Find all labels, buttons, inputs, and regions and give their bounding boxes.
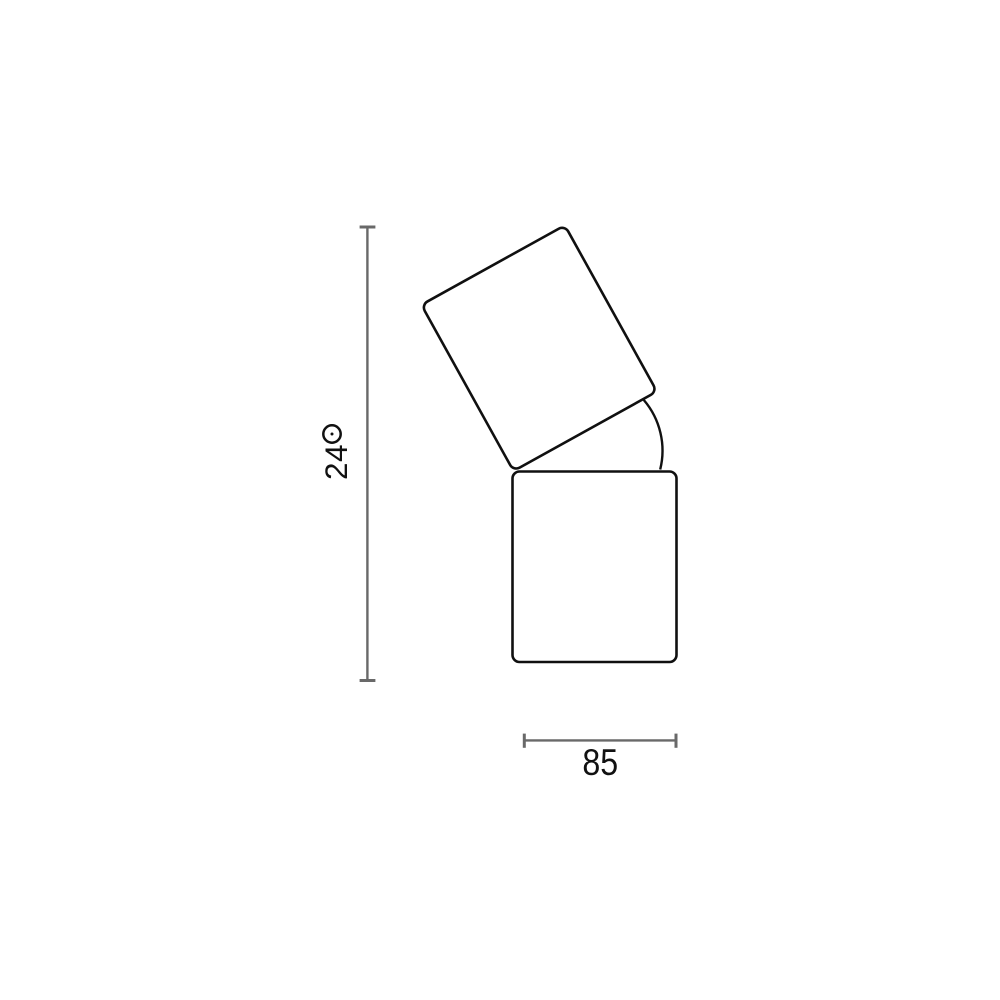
svg-text:85: 85 [582,743,618,784]
svg-text:24: 24 [318,444,354,480]
